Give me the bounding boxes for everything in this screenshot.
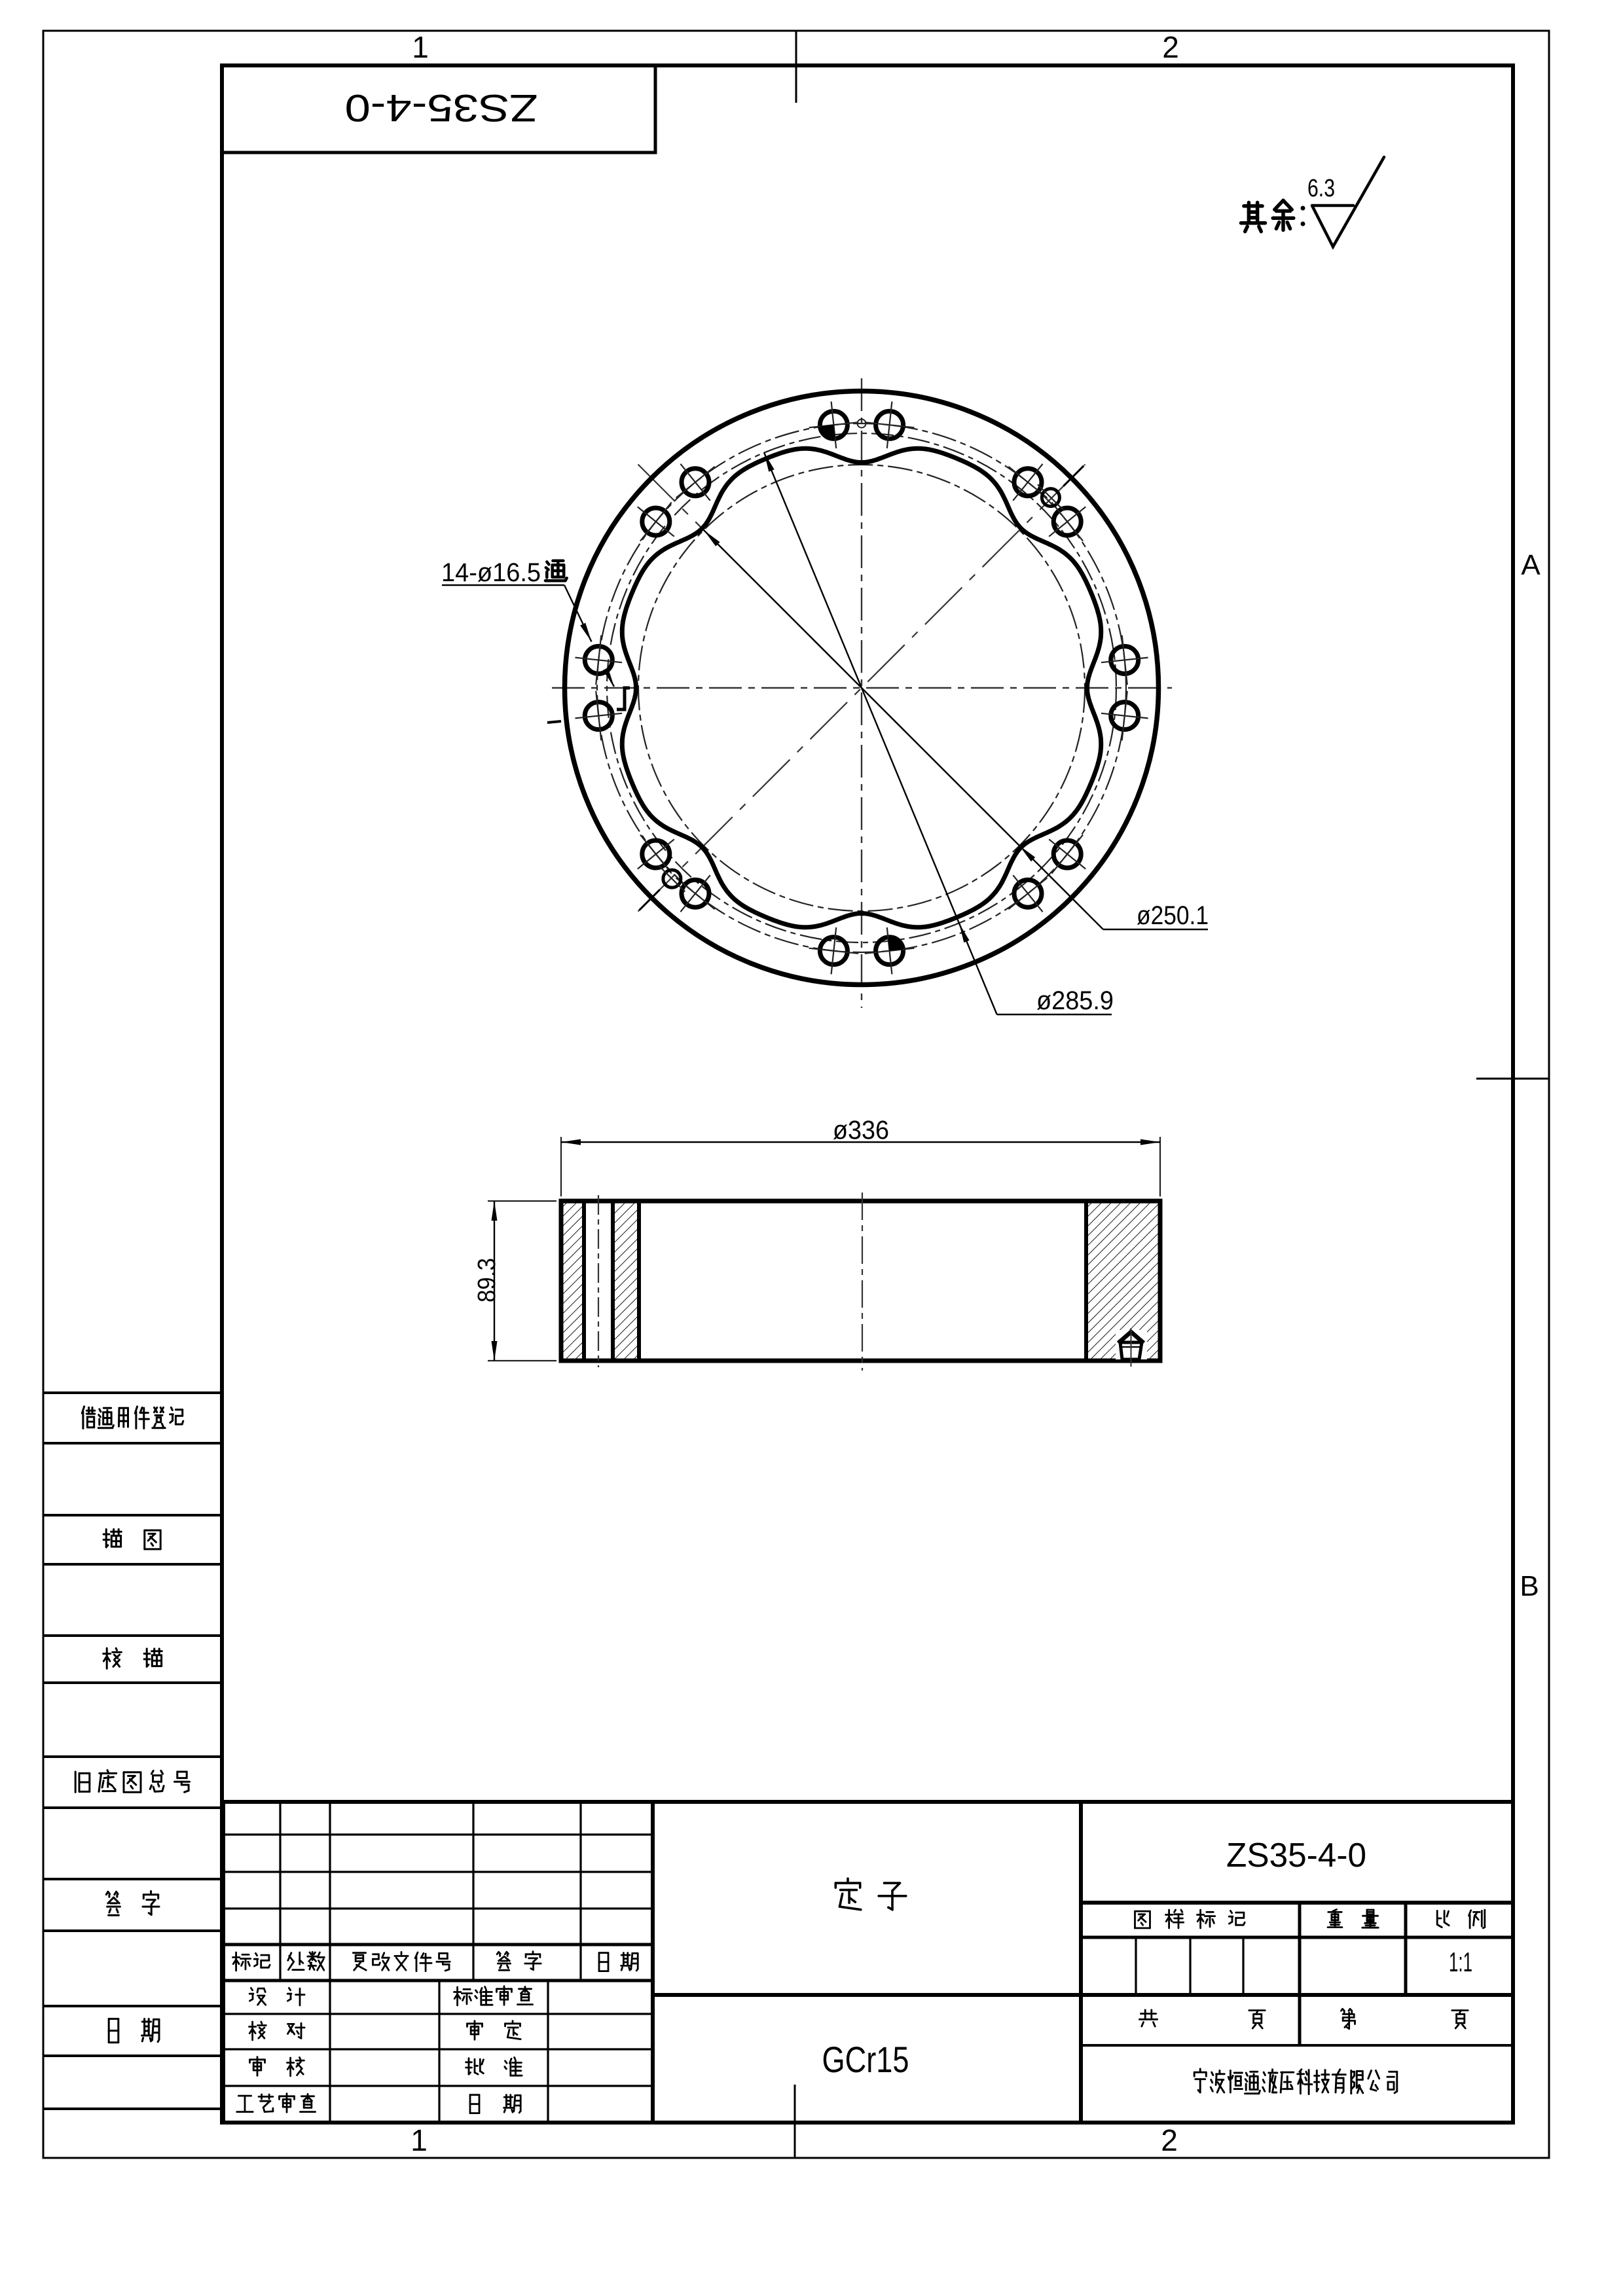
svg-text:1: 1: [412, 30, 429, 64]
svg-text:ZS35-4-0: ZS35-4-0: [1226, 1837, 1366, 1874]
svg-text:A: A: [1521, 549, 1541, 581]
svg-text:89.3: 89.3: [473, 1258, 501, 1302]
svg-text:B: B: [1520, 1570, 1539, 1602]
svg-text:ø336: ø336: [833, 1116, 889, 1145]
svg-text:GCr15: GCr15: [822, 2039, 909, 2080]
svg-text:ø250.1: ø250.1: [1137, 901, 1209, 930]
svg-text:ø285.9: ø285.9: [1036, 986, 1114, 1015]
svg-text:14-ø16.5: 14-ø16.5: [441, 558, 541, 587]
svg-text:2: 2: [1161, 2123, 1178, 2157]
svg-text:ZS35-4-0: ZS35-4-0: [345, 86, 538, 129]
svg-text:1: 1: [410, 2123, 428, 2157]
svg-text:2: 2: [1162, 30, 1179, 64]
svg-text:1:1: 1:1: [1449, 1946, 1472, 1977]
svg-text:6.3: 6.3: [1307, 175, 1335, 202]
